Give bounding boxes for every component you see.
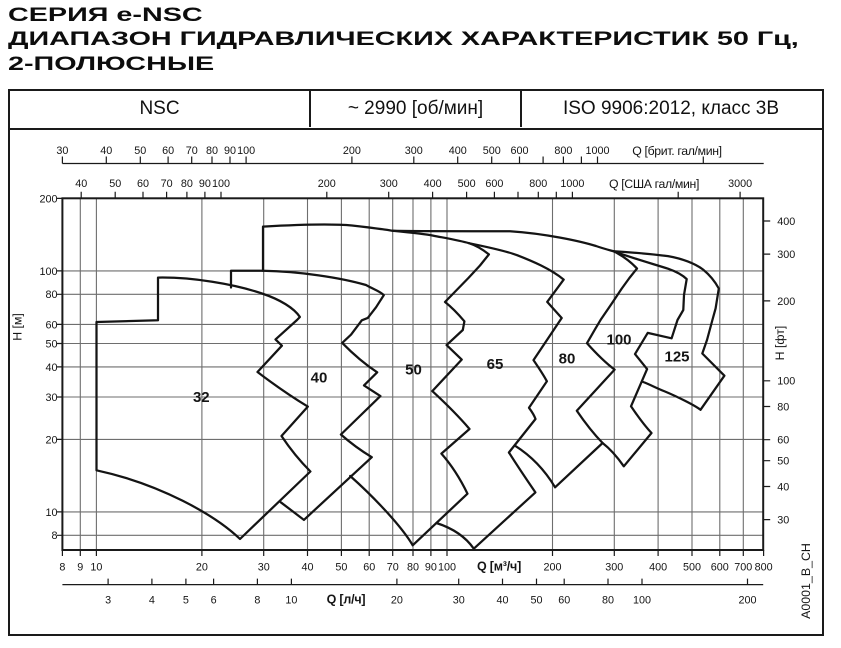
svg-text:3: 3 [105, 595, 111, 607]
svg-text:400: 400 [424, 178, 442, 190]
svg-text:70: 70 [186, 145, 198, 157]
svg-text:200: 200 [39, 193, 57, 205]
svg-text:600: 600 [711, 561, 729, 573]
svg-text:125: 125 [664, 348, 689, 365]
svg-text:6: 6 [211, 595, 217, 607]
svg-text:H [м]: H [м] [11, 313, 25, 341]
svg-text:50: 50 [109, 178, 121, 190]
svg-text:700: 700 [734, 561, 752, 573]
svg-text:50: 50 [45, 338, 57, 350]
svg-text:800: 800 [755, 561, 773, 573]
svg-text:30: 30 [258, 561, 270, 573]
svg-text:70: 70 [161, 178, 173, 190]
svg-text:100: 100 [606, 331, 631, 348]
svg-text:5: 5 [183, 595, 189, 607]
svg-text:200: 200 [318, 178, 336, 190]
svg-text:300: 300 [605, 561, 623, 573]
svg-text:400: 400 [449, 145, 467, 157]
svg-text:300: 300 [405, 145, 423, 157]
svg-text:65: 65 [487, 356, 504, 373]
svg-text:100: 100 [777, 376, 795, 388]
svg-text:40: 40 [496, 595, 508, 607]
svg-text:500: 500 [683, 561, 701, 573]
svg-text:500: 500 [483, 145, 501, 157]
svg-text:50: 50 [530, 595, 542, 607]
svg-text:8: 8 [254, 595, 260, 607]
svg-text:80: 80 [559, 350, 576, 367]
svg-text:40: 40 [301, 561, 313, 573]
svg-text:800: 800 [529, 178, 547, 190]
svg-text:20: 20 [391, 595, 403, 607]
svg-text:400: 400 [777, 216, 795, 228]
svg-text:3000: 3000 [728, 178, 752, 190]
svg-text:10: 10 [45, 507, 57, 519]
svg-text:4: 4 [149, 595, 155, 607]
svg-text:100: 100 [39, 266, 57, 278]
svg-text:40: 40 [311, 369, 328, 386]
svg-text:80: 80 [45, 289, 57, 301]
svg-text:40: 40 [75, 178, 87, 190]
svg-text:10: 10 [285, 595, 297, 607]
svg-text:90: 90 [224, 145, 236, 157]
svg-text:60: 60 [137, 178, 149, 190]
svg-text:10: 10 [90, 561, 102, 573]
svg-text:40: 40 [777, 481, 789, 493]
svg-text:40: 40 [45, 362, 57, 374]
svg-text:200: 200 [777, 296, 795, 308]
svg-text:50: 50 [777, 456, 789, 468]
svg-text:20: 20 [196, 561, 208, 573]
svg-text:30: 30 [777, 515, 789, 527]
svg-text:500: 500 [458, 178, 476, 190]
svg-text:800: 800 [554, 145, 572, 157]
svg-text:100: 100 [438, 561, 456, 573]
svg-text:50: 50 [335, 561, 347, 573]
svg-text:80: 80 [206, 145, 218, 157]
svg-text:60: 60 [558, 595, 570, 607]
svg-text:100: 100 [633, 595, 651, 607]
svg-text:60: 60 [162, 145, 174, 157]
svg-text:20: 20 [45, 434, 57, 446]
svg-text:8: 8 [51, 530, 57, 542]
svg-text:200: 200 [543, 561, 561, 573]
svg-text:H [фт]: H [фт] [773, 326, 787, 361]
svg-text:100: 100 [237, 145, 255, 157]
svg-text:60: 60 [777, 435, 789, 447]
svg-text:400: 400 [649, 561, 667, 573]
svg-text:600: 600 [485, 178, 503, 190]
svg-text:30: 30 [56, 145, 68, 157]
svg-text:Q [л/ч]: Q [л/ч] [327, 593, 366, 607]
svg-text:32: 32 [193, 389, 210, 406]
svg-text:50: 50 [134, 145, 146, 157]
svg-text:600: 600 [510, 145, 528, 157]
svg-text:60: 60 [363, 561, 375, 573]
svg-text:90: 90 [425, 561, 437, 573]
svg-text:70: 70 [387, 561, 399, 573]
svg-text:200: 200 [343, 145, 361, 157]
svg-text:80: 80 [407, 561, 419, 573]
svg-text:1000: 1000 [585, 145, 609, 157]
svg-text:80: 80 [777, 401, 789, 413]
svg-text:300: 300 [777, 249, 795, 261]
svg-text:1000: 1000 [560, 178, 584, 190]
svg-text:30: 30 [453, 595, 465, 607]
svg-text:9: 9 [77, 561, 83, 573]
svg-text:200: 200 [738, 595, 756, 607]
svg-text:60: 60 [45, 319, 57, 331]
svg-text:40: 40 [100, 145, 112, 157]
svg-text:80: 80 [181, 178, 193, 190]
svg-text:50: 50 [405, 361, 422, 378]
svg-text:Q [США гал/мин]: Q [США гал/мин] [609, 177, 699, 191]
svg-text:8: 8 [59, 561, 65, 573]
svg-text:80: 80 [602, 595, 614, 607]
svg-text:100: 100 [212, 178, 230, 190]
svg-text:30: 30 [45, 392, 57, 404]
svg-text:Q [брит. гал/мин]: Q [брит. гал/мин] [632, 144, 721, 158]
svg-text:Q [м³/ч]: Q [м³/ч] [477, 559, 521, 573]
svg-text:300: 300 [380, 178, 398, 190]
svg-text:A0001_B_CH: A0001_B_CH [799, 543, 813, 619]
svg-text:90: 90 [199, 178, 211, 190]
